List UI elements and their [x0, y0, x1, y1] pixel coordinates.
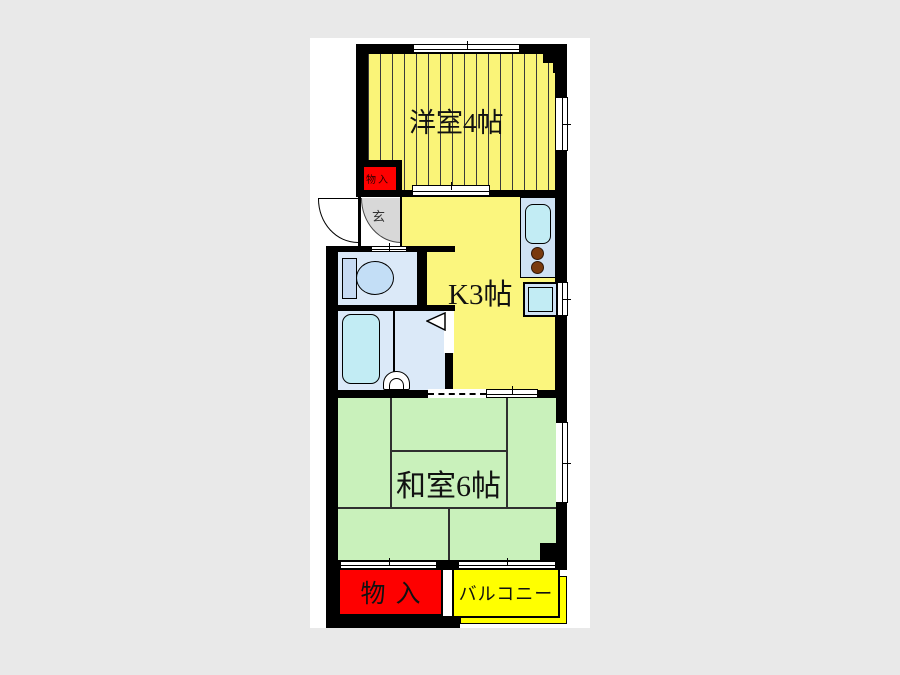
tatami-line-v2 [506, 398, 508, 507]
toilet-icon-bowl [356, 261, 394, 295]
tatami-line-h1 [390, 450, 508, 452]
sliding-door-icon-tatami [486, 389, 538, 398]
room-japanese-label: 和室6帖 [396, 461, 501, 505]
wall-toilet-right [417, 246, 427, 311]
wall-bottom [326, 616, 460, 628]
tatami-line-v3 [448, 507, 450, 560]
window-icon-top [413, 44, 520, 53]
stove-burner-icon-2 [531, 261, 544, 274]
stove-burner-icon-1 [531, 247, 544, 260]
wall-left [326, 246, 338, 628]
sink-icon [525, 204, 551, 244]
balcony-label: バルコニー [459, 580, 554, 606]
tatami-line-h2 [336, 507, 556, 509]
tatami-line-v1 [390, 398, 392, 507]
open-passage-dashed [428, 389, 486, 398]
balcony: バルコニー [452, 568, 560, 618]
bathtub-icon [342, 314, 380, 384]
window-icon-western-right [555, 97, 568, 151]
sliding-door-icon-western [412, 185, 490, 196]
room-western-label: 洋室4帖 [409, 101, 504, 140]
toilet-icon-tank [342, 258, 357, 299]
washer-icon-inner [528, 287, 553, 312]
storage-top-label: 物入 [366, 171, 390, 186]
window-icon-tatami-right [555, 422, 568, 503]
floor-plan-screen: 洋室4帖 物入 玄 K3帖 [0, 0, 900, 675]
storage-bottom-label: 物入 [350, 574, 430, 610]
room-kitchen-label: K3帖 [448, 271, 512, 313]
washbasin-icon-inner [389, 378, 404, 389]
door-marker-icon-bath [426, 312, 447, 331]
storage-bottom: 物入 [338, 568, 443, 616]
room-kitchen-c [453, 311, 555, 390]
genkan-label: 玄 [372, 206, 385, 225]
